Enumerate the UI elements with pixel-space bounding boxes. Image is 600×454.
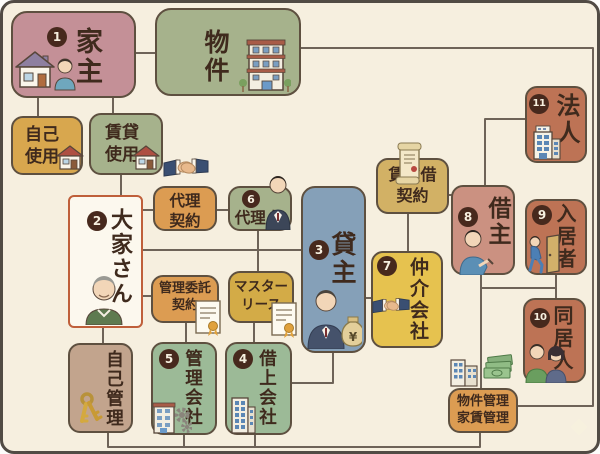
lessor-person-money-bag-icon: ¥ (306, 287, 362, 349)
banknotes-icon (482, 354, 514, 381)
keys-icon (75, 391, 105, 429)
badge-2: 2 (87, 211, 107, 231)
label-line: 代理 (153, 191, 217, 211)
certificate-icon (270, 301, 298, 339)
badge-4: 4 (233, 349, 253, 369)
label-line: 契約 (153, 211, 217, 231)
badge-3: 3 (309, 240, 329, 260)
leasing-building-icon (229, 395, 257, 435)
property-building-icon (239, 36, 291, 93)
label-line: 家賃管理 (448, 411, 518, 428)
line-management-bottom-spine (108, 433, 480, 447)
handshake-icon (163, 153, 209, 183)
badge-8: 8 (458, 207, 478, 227)
badge-6: 6 (242, 190, 260, 208)
label-agency-contract: 代理 契約 (153, 191, 217, 231)
label-line: 契約 (376, 186, 449, 207)
badge-7: 7 (377, 256, 397, 276)
line-corporation-to-lessee (485, 119, 525, 185)
house-icon (15, 49, 55, 91)
label-property: 物件 (203, 29, 228, 85)
handshake-icon (372, 293, 410, 319)
house-icon (56, 144, 84, 172)
label-property-rent-management: 物件管理 家賃管理 (448, 394, 518, 428)
label-line: マスター (228, 279, 294, 297)
lessee-signing-icon (458, 229, 494, 275)
landlord-person-icon (82, 275, 126, 325)
property-buildings-icon (449, 352, 481, 387)
owner-person-icon (53, 57, 77, 91)
badge-5: 5 (159, 349, 179, 369)
label-line: 物件管理 (448, 394, 518, 411)
resident-door-icon (525, 233, 561, 275)
badge-1: 1 (47, 27, 67, 47)
contract-scroll-icon (393, 141, 425, 185)
corporation-building-icon (530, 123, 564, 161)
label-line: 自己 (11, 124, 73, 146)
house-icon (132, 144, 160, 172)
management-building-gears-icon (152, 397, 192, 435)
label-self-management: 自己管理 (104, 350, 122, 428)
svg-text:¥: ¥ (349, 330, 358, 344)
certificate-icon (194, 299, 222, 337)
diagram-canvas: 1 2 3 4 5 6 7 8 9 10 11 家主 物件 自己 使用 賃貸 使… (0, 0, 600, 454)
agent-person-icon (265, 175, 291, 230)
label-line: 賃貸 (91, 122, 153, 144)
label-house-owner: 家主 (73, 27, 100, 87)
badge-9: 9 (532, 205, 552, 225)
badge-10: 10 (530, 308, 550, 328)
line-lessor-to-leasingcompany (292, 353, 333, 383)
cohabitant-couple-icon (525, 343, 569, 383)
label-lessor: 貸主 (330, 231, 355, 287)
label-leasing-company: 借上会社 (257, 349, 275, 427)
badge-11: 11 (529, 94, 549, 114)
label-brokerage-company: 仲介会社 (408, 257, 427, 342)
label-line: 管理委託 (151, 281, 219, 298)
